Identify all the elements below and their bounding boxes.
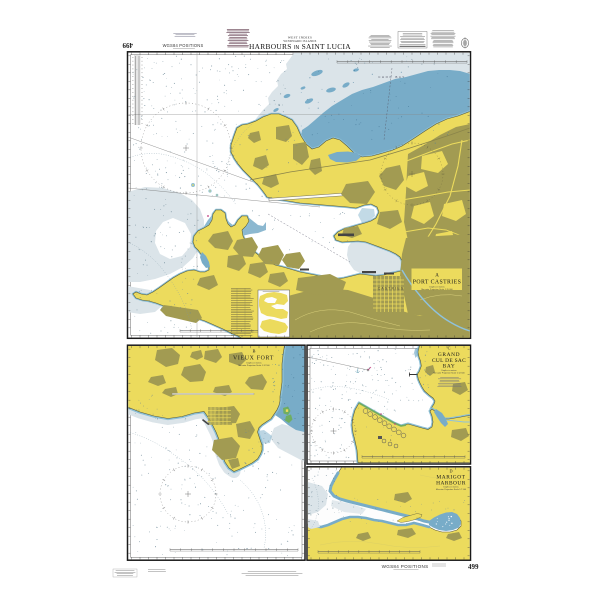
svg-text:Mercator Projection Scale 1:1: Mercator Projection Scale 1:15 000 xyxy=(421,288,453,291)
svg-text:Depths in metres: Depths in metres xyxy=(246,362,261,365)
svg-text:Mercator Projection Scale 1:7: Mercator Projection Scale 1:7 500 xyxy=(436,488,467,491)
svg-text:⚓: ⚓ xyxy=(355,368,360,373)
svg-text:BAY: BAY xyxy=(443,364,456,370)
svg-text:C: C xyxy=(448,346,451,351)
svg-text:A: A xyxy=(435,274,439,279)
svg-text:PORT CASTRIES: PORT CASTRIES xyxy=(413,280,461,286)
svg-text:HARBOURS IN SAINT LUCIA: HARBOURS IN SAINT LUCIA xyxy=(249,42,351,51)
svg-text:Mercator Projection Scale 1:1: Mercator Projection Scale 1:12 500 xyxy=(238,364,270,367)
svg-text:D: D xyxy=(449,469,452,474)
svg-text:499: 499 xyxy=(468,563,479,571)
svg-text:Mercator Projection Scale 1:1: Mercator Projection Scale 1:12 500 xyxy=(433,372,465,375)
svg-text:WGS84 POSITIONS: WGS84 POSITIONS xyxy=(163,43,204,48)
svg-text:CHOC BAY: CHOC BAY xyxy=(378,75,405,79)
svg-text:HARBOUR: HARBOUR xyxy=(436,480,466,486)
svg-text:B: B xyxy=(252,349,255,354)
svg-text:CASTRIES: CASTRIES xyxy=(378,287,405,291)
svg-text:WEST INDIES: WEST INDIES xyxy=(288,36,312,40)
svg-text:499: 499 xyxy=(122,41,133,49)
svg-text:VIEUX FORT: VIEUX FORT xyxy=(233,356,274,362)
svg-text:WGS84 POSITIONS: WGS84 POSITIONS xyxy=(382,564,429,569)
